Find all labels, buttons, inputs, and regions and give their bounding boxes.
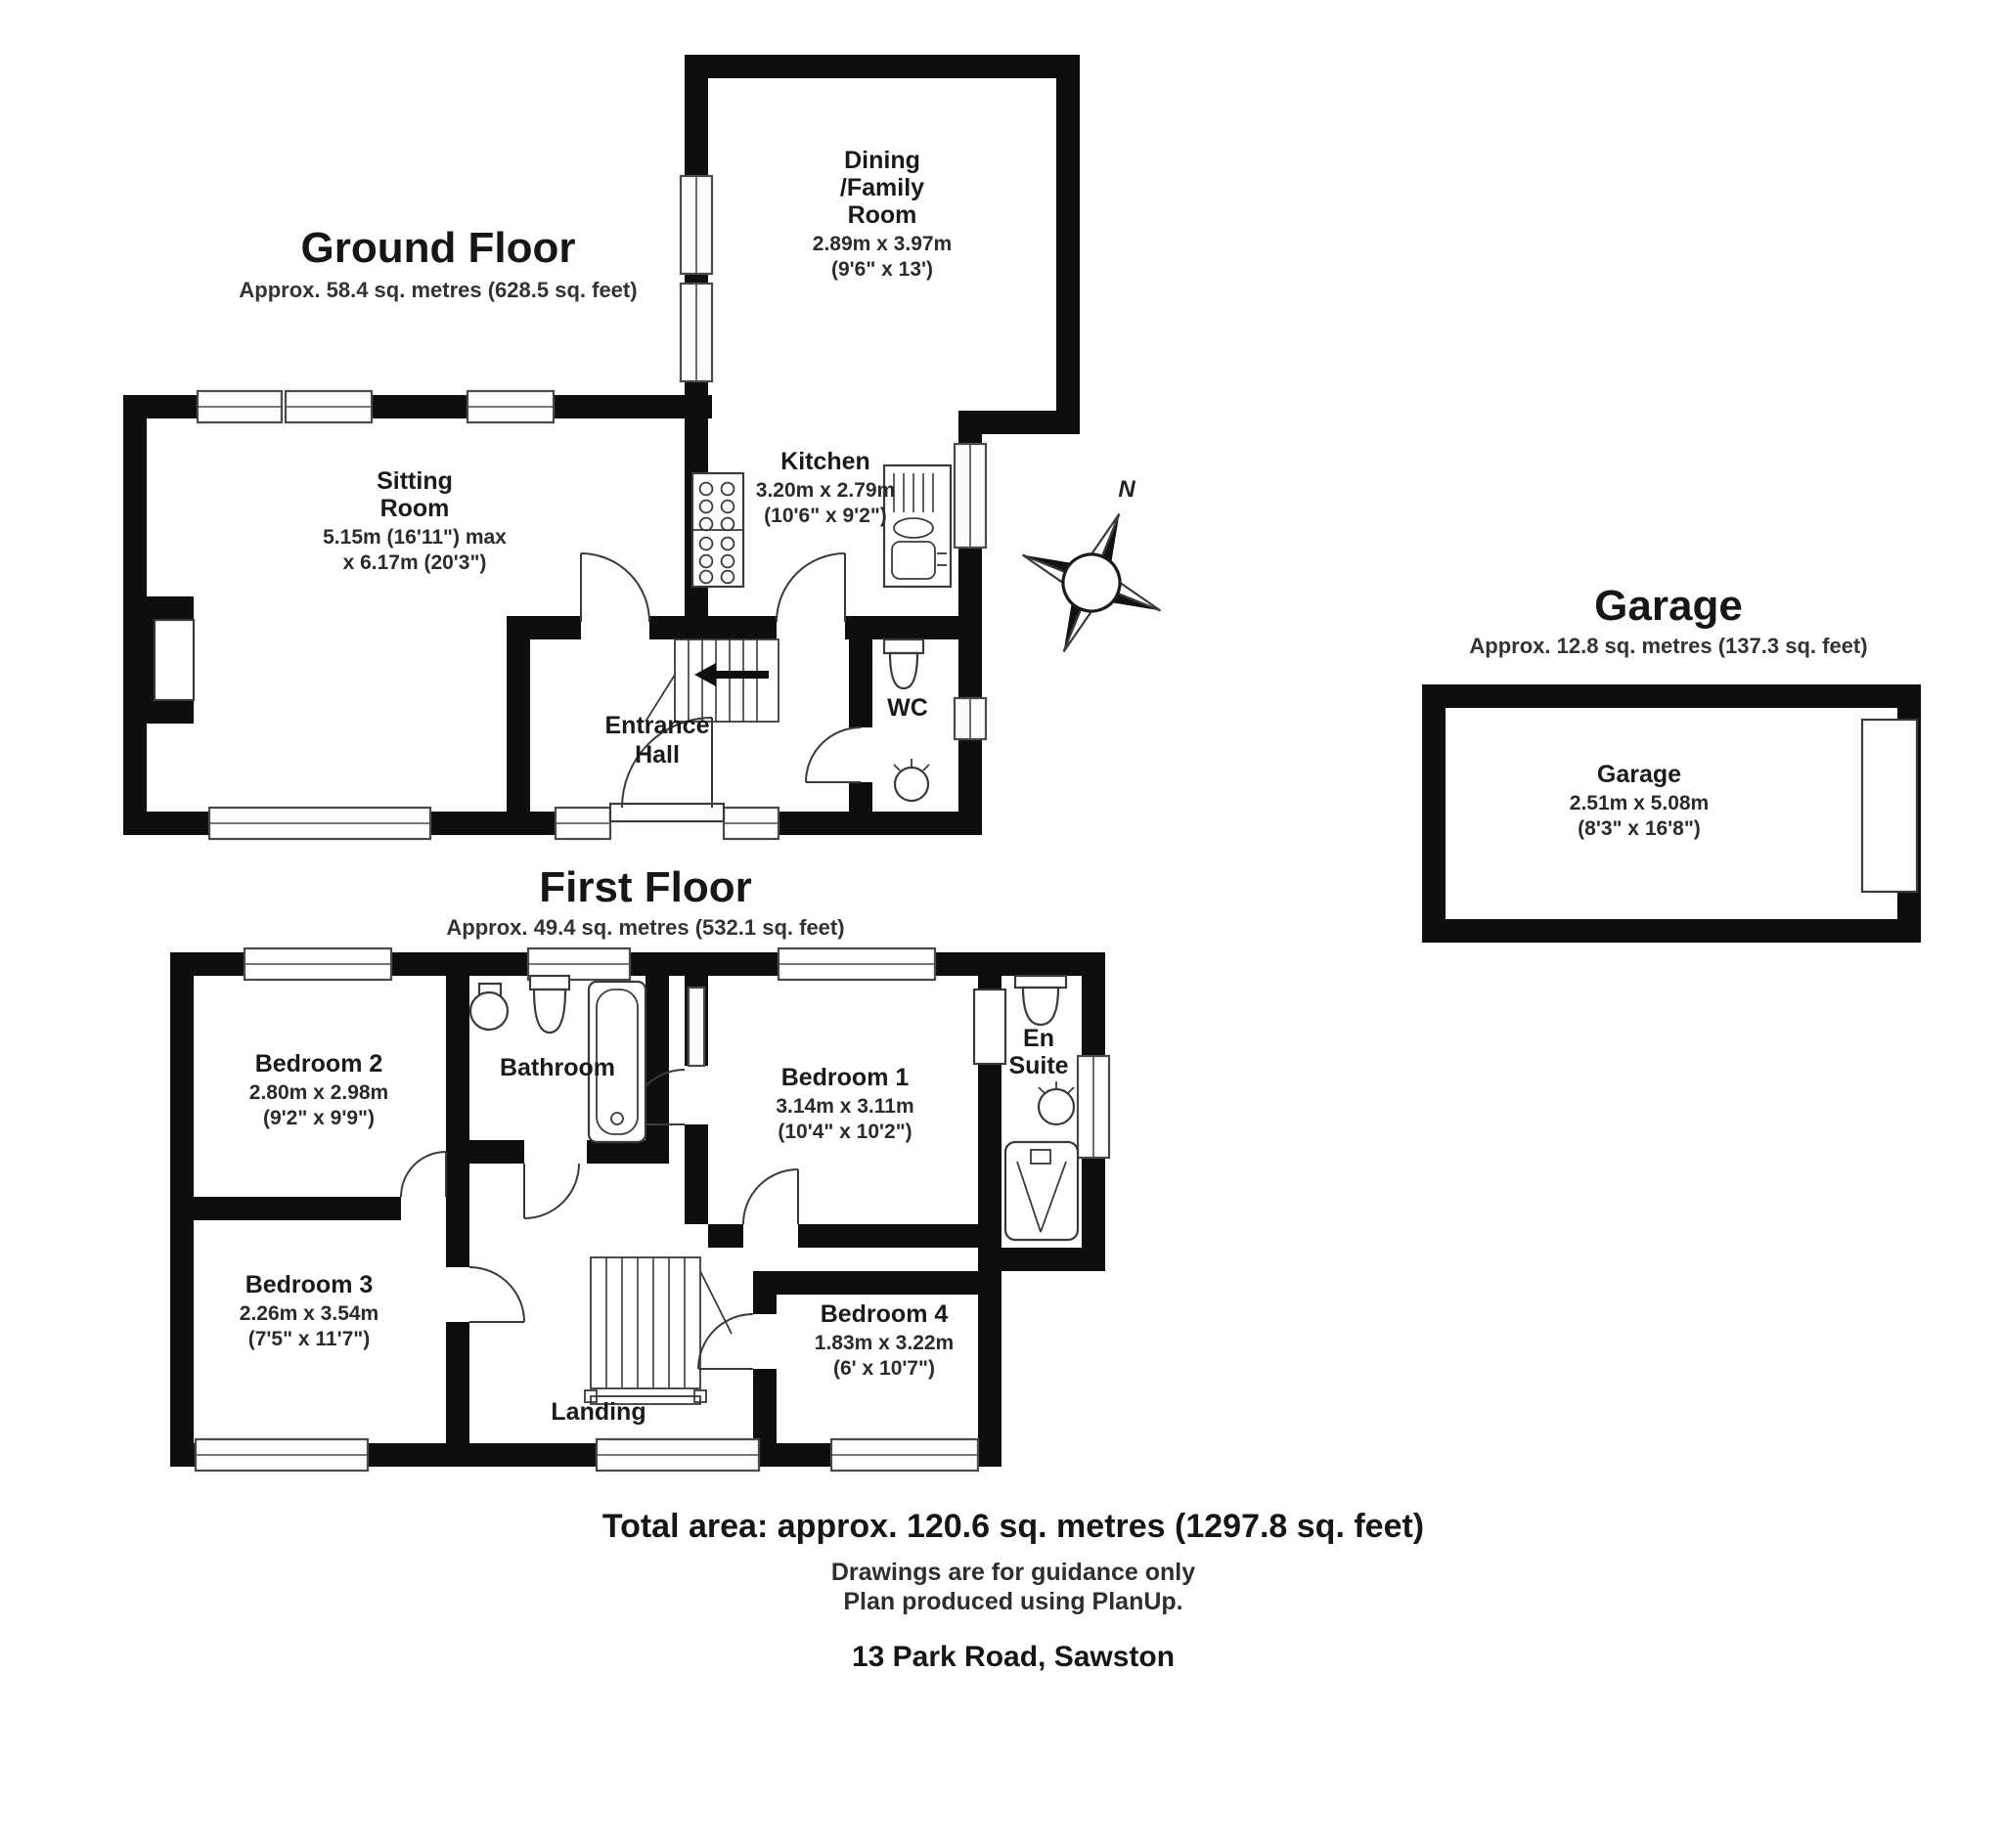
wc-toilet-icon — [884, 639, 923, 688]
ensuite-door-icon — [974, 990, 1005, 1064]
garage-door-icon — [1862, 720, 1917, 892]
entrance-hall-label-2: Hall — [635, 741, 680, 769]
ground-floor-plan: Ground Floor Approx. 58.4 sq. metres (62… — [123, 55, 1080, 839]
bedroom1-dims-2: (10'4" x 10'2") — [778, 1121, 912, 1143]
dining-room-label-3: Room — [848, 201, 917, 229]
first-floor-title: First Floor — [539, 863, 752, 911]
bathroom-label: Bathroom — [500, 1054, 615, 1081]
bathroom-basin-icon — [470, 984, 508, 1030]
dining-room-dims-1: 2.89m x 3.97m — [813, 233, 952, 255]
floorplan-page: Ground Floor Approx. 58.4 sq. metres (62… — [0, 0, 2003, 1848]
bedroom3-dims-2: (7'5" x 11'7") — [248, 1328, 370, 1350]
kitchen-hob-icon — [692, 473, 743, 587]
bedroom4-dims-2: (6' x 10'7") — [833, 1357, 935, 1380]
bathroom-toilet-icon — [530, 976, 569, 1033]
bedroom3-dims-1: 2.26m x 3.54m — [240, 1302, 378, 1325]
garage-dims-2: (8'3" x 16'8") — [1578, 817, 1701, 840]
dining-room-dims-2: (9'6" x 13') — [831, 258, 933, 281]
landing-label: Landing — [551, 1398, 645, 1426]
wc-label: WC — [887, 694, 928, 722]
footer-notes: Total area: approx. 120.6 sq. metres (12… — [602, 1508, 1424, 1673]
garage-dims-1: 2.51m x 5.08m — [1570, 792, 1709, 814]
dining-room-label-2: /Family — [840, 174, 924, 201]
bedroom2-dims-2: (9'2" x 9'9") — [263, 1107, 375, 1129]
kitchen-label: Kitchen — [780, 448, 870, 475]
garage-subtitle: Approx. 12.8 sq. metres (137.3 sq. feet) — [1469, 634, 1867, 658]
address-text: 13 Park Road, Sawston — [852, 1641, 1175, 1673]
ground-floor-title: Ground Floor — [300, 224, 575, 272]
bedroom4-label: Bedroom 4 — [821, 1300, 949, 1328]
first-floor-subtitle: Approx. 49.4 sq. metres (532.1 sq. feet) — [446, 915, 844, 940]
garage-room-label: Garage — [1597, 761, 1681, 788]
ensuite-basin-icon — [1039, 1081, 1074, 1124]
ground-floor-walls — [123, 55, 1080, 835]
sitting-room-label-2: Room — [380, 495, 450, 522]
sitting-room-dims-2: x 6.17m (20'3") — [343, 551, 487, 574]
bedroom1-dims-1: 3.14m x 3.11m — [776, 1095, 913, 1118]
stairs-direction-arrow-icon — [694, 663, 716, 686]
bedroom2-dims-1: 2.80m x 2.98m — [249, 1081, 388, 1104]
ensuite-toilet-icon — [1015, 976, 1066, 1025]
bedroom2-label: Bedroom 2 — [255, 1050, 383, 1078]
ensuite-label-1: En — [1023, 1025, 1054, 1052]
kitchen-dims-1: 3.20m x 2.79m — [756, 479, 895, 502]
kitchen-dims-2: (10'6" x 9'2") — [764, 505, 887, 527]
ensuite-label-2: Suite — [1008, 1052, 1068, 1079]
compass-north-label: N — [1118, 476, 1135, 503]
ground-floor-subtitle: Approx. 58.4 sq. metres (628.5 sq. feet) — [239, 278, 637, 302]
dining-room-label-1: Dining — [844, 147, 920, 174]
garage-plan: Garage Approx. 12.8 sq. metres (137.3 sq… — [1422, 582, 1921, 943]
bedroom4-dims-1: 1.83m x 3.22m — [815, 1332, 954, 1354]
compass-rose-icon: N — [995, 476, 1188, 680]
first-floor-stairs — [585, 1257, 732, 1404]
wc-basin-icon — [894, 759, 929, 801]
bedroom1-label: Bedroom 1 — [781, 1064, 910, 1091]
ground-floor-stairs — [645, 639, 779, 722]
entrance-hall-label-1: Entrance — [605, 712, 710, 739]
garage-title: Garage — [1594, 582, 1743, 630]
bedroom3-label: Bedroom 3 — [245, 1271, 374, 1298]
shower-icon — [1005, 1142, 1078, 1240]
sitting-room-label-1: Sitting — [377, 467, 453, 495]
first-floor-plan: First Floor Approx. 49.4 sq. metres (532… — [170, 863, 1109, 1471]
floor-plan-svg: Ground Floor Approx. 58.4 sq. metres (62… — [0, 0, 2003, 1848]
sitting-room-dims-1: 5.15m (16'11") max — [323, 526, 507, 549]
disclaimer-line-1: Drawings are for guidance only — [831, 1559, 1195, 1586]
ground-floor-doors — [581, 553, 861, 821]
disclaimer-line-2: Plan produced using PlanUp. — [843, 1588, 1182, 1615]
total-area-text: Total area: approx. 120.6 sq. metres (12… — [602, 1508, 1424, 1545]
